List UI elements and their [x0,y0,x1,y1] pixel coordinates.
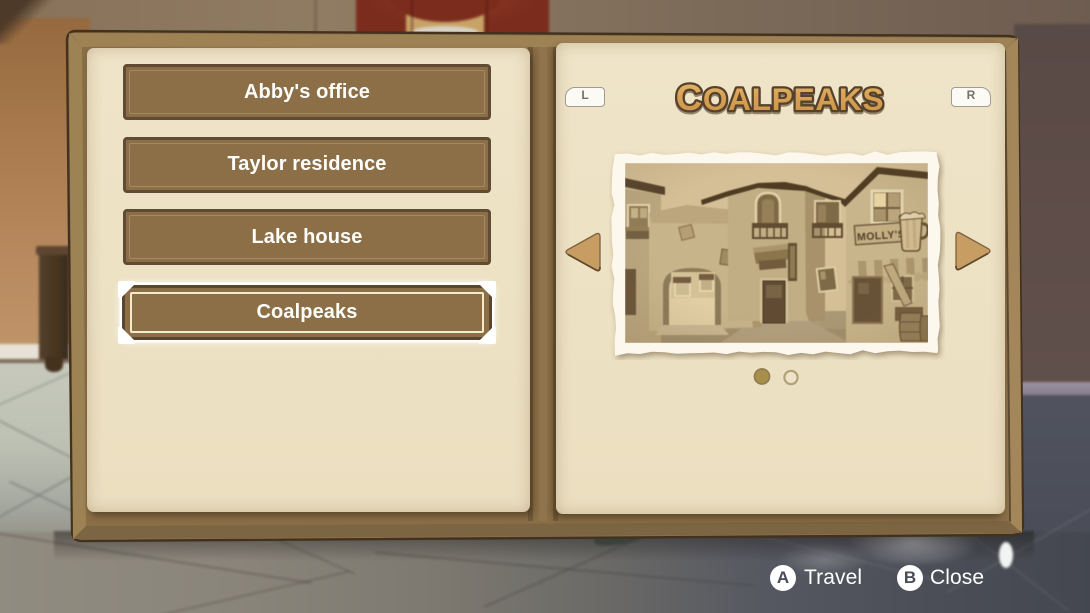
svg-text:COALPEAKS: COALPEAKS [676,77,885,118]
